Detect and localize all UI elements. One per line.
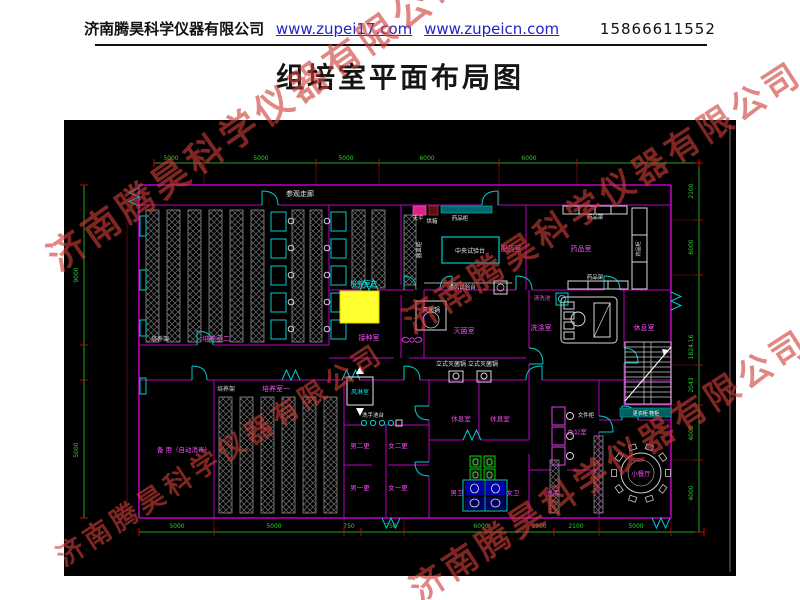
plan-label: 通风试验台 (448, 283, 476, 291)
dim-label: 750 (343, 523, 355, 530)
plan-label: 小餐厅 (631, 469, 651, 478)
page-header: 济南腾昊科学仪器有限公司 www.zupei17.com www.zupeicn… (0, 18, 800, 39)
plan-label: 男二更 (350, 442, 370, 450)
plan-label: 配药室 (501, 244, 522, 253)
plan-label: 参观走廊 (286, 189, 314, 198)
dim-label: 5000 (338, 155, 353, 162)
plan-label: 洗涤室 (531, 323, 552, 332)
link-zupei17[interactable]: www.zupei17.com (276, 20, 412, 38)
plan-label: 灭菌锅 (422, 306, 440, 314)
dim-label: 9000 (73, 267, 80, 282)
dim-label: 6000 (688, 239, 695, 254)
plan-label: 休息室 (451, 414, 471, 423)
incubator-stack (271, 212, 346, 339)
dim-label: 5000 (266, 523, 281, 530)
plan-label: 男卫 (451, 489, 465, 497)
company-name: 济南腾昊科学仪器有限公司 (84, 20, 264, 38)
plan-label: 培养室三 (350, 279, 378, 288)
dim-label: 6000 (473, 523, 488, 530)
plan-label: 清洗池 (534, 294, 551, 302)
chair (612, 470, 617, 477)
chair (615, 453, 623, 462)
dim-label: 4000 (688, 485, 695, 500)
dim-label: 5000 (253, 155, 268, 162)
plan-label: 更衣柜 鞋柜 (633, 410, 660, 417)
equipment-strip (441, 206, 492, 213)
dim-label: 1500 (531, 523, 546, 530)
plan-label: 药品柜 (635, 241, 642, 256)
dim-label: 6000 (419, 155, 434, 162)
chair (645, 444, 653, 451)
dim-label: 1824.16 (688, 334, 695, 359)
dim-label: 5000 (73, 442, 80, 457)
plan-label: 休息室 (634, 323, 655, 332)
floor-plan-drawing: 5000500050006000600050005000750750600015… (64, 120, 736, 576)
plan-label: 女二更 (388, 441, 408, 450)
plan-label: 女卫 (507, 488, 521, 497)
dim-label: 750 (385, 523, 397, 530)
plan-label: 药品架 (587, 273, 604, 281)
plan-label: 男一更 (350, 484, 370, 492)
plan-label: 洗手池台 (362, 411, 385, 419)
plan-label: 培养室二 (202, 334, 230, 343)
chair (666, 470, 671, 477)
uv-lamp-icon (402, 337, 422, 342)
plan-label: 烘箱 (426, 217, 438, 225)
dim-label: 2100 (568, 523, 583, 530)
plan-label: 接种室 (359, 333, 380, 342)
phone-number: 15866611552 (600, 20, 716, 38)
plan-label: 灭菌室 (454, 326, 475, 335)
plan-label: 立式灭菌锅 立式灭菌锅 (436, 360, 498, 368)
plan-label: 器皿柜 (415, 241, 423, 258)
culture-racks-layer (146, 210, 603, 513)
plan-label: 培养室一 (262, 384, 290, 393)
plan-label: 天平 (412, 215, 424, 222)
chair (659, 485, 667, 494)
chair (629, 444, 637, 451)
plan-label: 风淋室 (351, 388, 369, 396)
dim-label: 5000 (169, 523, 184, 530)
header-divider (95, 44, 707, 46)
plan-label: 备 用（自动消毒） (157, 445, 211, 454)
plan-label: 女一更 (388, 483, 408, 492)
plan-label: 药品架 (587, 213, 604, 221)
dim-label: 5000 (628, 523, 643, 530)
highlight-marker (340, 291, 379, 323)
toilet-fixtures (463, 456, 507, 511)
page-title: 组培室平面布局图 (0, 56, 800, 96)
plan-label: 药品柜 (452, 214, 469, 222)
floor-plan-canvas: 5000500050006000600050005000750750600015… (64, 120, 736, 576)
dim-label: 5000 (163, 155, 178, 162)
plan-label: 药品室 (571, 244, 592, 253)
stairs (625, 342, 671, 404)
chair (629, 495, 637, 502)
dim-label: 2100 (688, 183, 695, 198)
plan-label: 办公室 (567, 427, 587, 436)
autoclave-box (416, 301, 446, 330)
dim-label: 6000 (521, 155, 536, 162)
chair (615, 485, 623, 494)
oven-badge (429, 206, 438, 215)
chair (645, 495, 653, 502)
plan-label: 文件柜 (578, 411, 595, 419)
office-desks (552, 407, 574, 465)
plan-label: 培养架 (151, 335, 169, 343)
page: 济南腾昊科学仪器有限公司 www.zupei17.com www.zupeicn… (0, 0, 800, 600)
chair (659, 453, 667, 462)
plan-label: 休息室 (490, 414, 510, 423)
link-zupeicn[interactable]: www.zupeicn.com (424, 20, 559, 38)
dim-label: 4000 (688, 425, 695, 440)
plan-label: 仓库 (547, 488, 561, 497)
dim-label: 2043 (688, 377, 695, 392)
plan-label: 培养架 (217, 385, 235, 393)
plan-label: 中央试验台 (455, 247, 485, 255)
washing-equipment (561, 297, 617, 343)
balance-badge (413, 206, 426, 215)
